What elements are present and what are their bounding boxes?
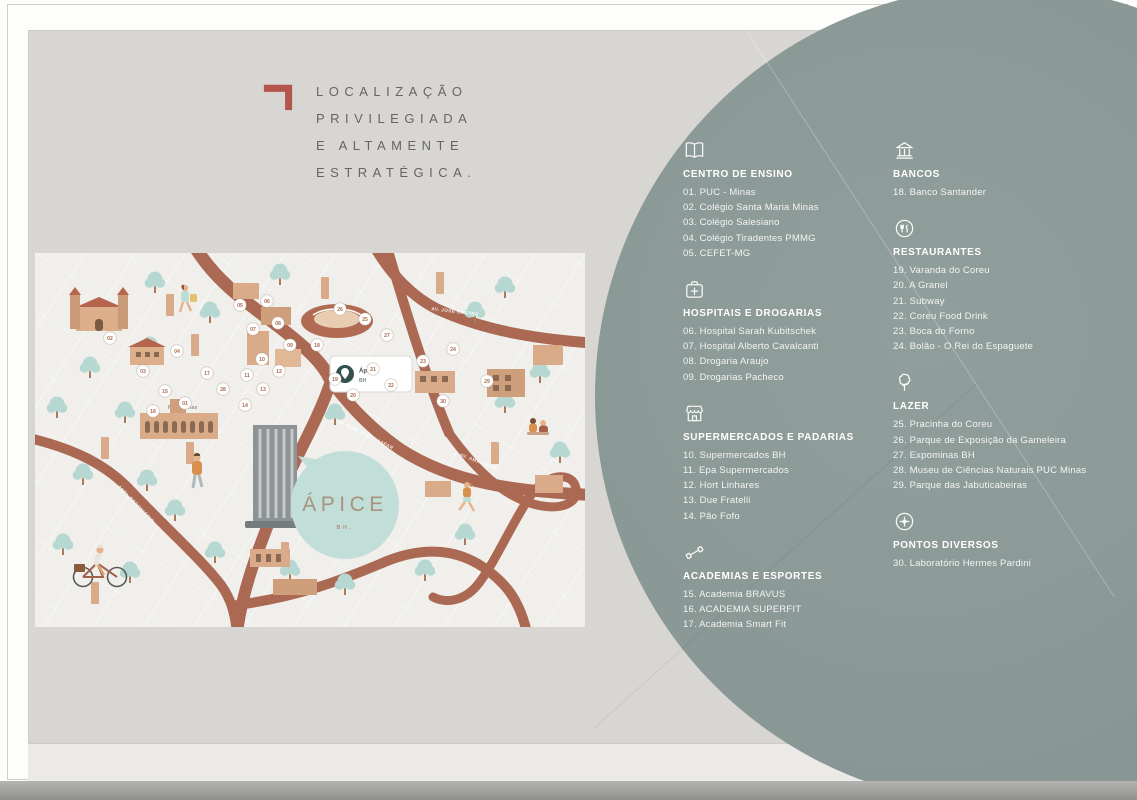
legend-section-supermercados: SUPERMERCADOS E PADARIAS 10. Supermercad… xyxy=(683,402,879,524)
map-marker-number: 06 xyxy=(264,299,270,305)
project-subtitle: BH. xyxy=(337,525,354,531)
map-marker-number: 30 xyxy=(440,399,446,405)
poi-item: 26. Parque de Exposição da Gameleira xyxy=(893,433,1093,448)
map-marker-number: 29 xyxy=(484,379,490,385)
poi-item: 21. Subway xyxy=(893,294,1093,309)
legend-section-hospitais: HOSPITAIS E DROGARIAS 06. Hospital Sarah… xyxy=(683,278,879,385)
map-marker-number: 13 xyxy=(260,387,266,393)
map-marker-number: 01 xyxy=(182,401,188,407)
legend-column-2: BANCOS 18. Banco Santander RESTAURANTES … xyxy=(893,139,1093,649)
legend-section-title: CENTRO DE ENSINO xyxy=(683,169,879,180)
map-marker-number: 26 xyxy=(337,307,343,313)
poi-item: 30. Laboratório Hermes Pardini xyxy=(893,556,1093,571)
poi-item: 14. Pão Fofo xyxy=(683,509,879,524)
corner-bracket-icon xyxy=(262,81,294,113)
title-line: ESTRATÉGICA. xyxy=(316,159,476,186)
tree-icon xyxy=(893,371,916,394)
legend-section-restaurantes: RESTAURANTES 19. Varanda do Coreu 20. A … xyxy=(893,217,1093,354)
poi-item: 06. Hospital Sarah Kubitschek xyxy=(683,324,879,339)
map-marker-number: 28 xyxy=(220,387,226,393)
legend-section-title: RESTAURANTES xyxy=(893,247,1093,258)
title-line: E ALTAMENTE xyxy=(316,132,476,159)
legend-section-title: PONTOS DIVERSOS xyxy=(893,540,1093,551)
poi-item: 07. Hospital Alberto Cavalcanti xyxy=(683,339,879,354)
project-balloon: ÁPICE BH. xyxy=(291,451,399,559)
pin-card-line2: BH xyxy=(359,378,367,384)
map-marker-number: 15 xyxy=(162,389,168,395)
location-map: PUC Minas xyxy=(35,253,585,627)
map-marker-number: 14 xyxy=(242,403,248,409)
restaurant-icon xyxy=(893,217,916,240)
legend-column-1: CENTRO DE ENSINO 01. PUC - Minas 02. Col… xyxy=(683,139,879,649)
dumbbell-icon xyxy=(683,541,706,564)
poi-item: 04. Colégio Tiradentes PMMG xyxy=(683,231,879,246)
poi-item: 10. Supermercados BH xyxy=(683,448,879,463)
poi-item: 11. Epa Supermercados xyxy=(683,463,879,478)
map-marker-number: 03 xyxy=(140,369,146,375)
map-marker-number: 16 xyxy=(150,409,156,415)
map-marker-number: 22 xyxy=(388,383,394,389)
map-marker-number: 19 xyxy=(332,377,338,383)
map-marker-number: 11 xyxy=(244,373,250,379)
map-marker-number: 12 xyxy=(276,369,282,375)
poi-item: 17. Academia Smart Fit xyxy=(683,617,879,632)
legend-section-title: BANCOS xyxy=(893,169,1093,180)
poi-item: 16. ACADEMIA SUPERFIT xyxy=(683,602,879,617)
poi-item: 12. Hort Linhares xyxy=(683,478,879,493)
legend-section-bancos: BANCOS 18. Banco Santander xyxy=(893,139,1093,200)
poi-item: 28. Museu de Ciências Naturais PUC Minas xyxy=(893,463,1093,478)
storefront-icon xyxy=(683,402,706,425)
map-marker-number: 04 xyxy=(174,349,180,355)
poi-item: 13. Due Fratelli xyxy=(683,493,879,508)
map-marker-number: 05 xyxy=(237,303,243,309)
poi-item: 08. Drogaria Araujo xyxy=(683,354,879,369)
poi-item: 29. Parque das Jabuticabeiras xyxy=(893,478,1093,493)
map-marker-number: 07 xyxy=(250,327,256,333)
poi-item: 27. Expominas BH xyxy=(893,448,1093,463)
map-marker-number: 02 xyxy=(107,336,113,342)
legend-section-pontos-diversos: PONTOS DIVERSOS 30. Laboratório Hermes P… xyxy=(893,510,1093,571)
poi-item: 05. CEFET-MG xyxy=(683,246,879,261)
poi-item: 24. Bolão - O Rei do Espaguete xyxy=(893,339,1093,354)
poi-item: 02. Colégio Santa Maria Minas xyxy=(683,200,879,215)
page-title: LOCALIZAÇÃO PRIVILEGIADA E ALTAMENTE EST… xyxy=(262,78,476,186)
poi-item: 19. Varanda do Coreu xyxy=(893,263,1093,278)
legend-section-title: HOSPITAIS E DROGARIAS xyxy=(683,308,879,319)
map-marker-number: 09 xyxy=(287,343,293,349)
map-marker-number: 21 xyxy=(370,367,376,373)
legend-section-title: SUPERMERCADOS E PADARIAS xyxy=(683,432,879,443)
poi-item: 23. Boca do Forno xyxy=(893,324,1093,339)
map-marker-number: 23 xyxy=(420,359,426,365)
legend-section-academias: ACADEMIAS E ESPORTES 15. Academia BRAVUS… xyxy=(683,541,879,633)
poi-item: 03. Colégio Salesiano xyxy=(683,215,879,230)
page-bottom-edge xyxy=(0,781,1137,800)
title-line: PRIVILEGIADA xyxy=(316,105,476,132)
poi-item: 15. Academia BRAVUS xyxy=(683,587,879,602)
brochure-page: LOCALIZAÇÃO PRIVILEGIADA E ALTAMENTE EST… xyxy=(0,0,1137,800)
map-marker-number: 08 xyxy=(275,321,281,327)
book-icon xyxy=(683,139,706,162)
legend-section-title: ACADEMIAS E ESPORTES xyxy=(683,571,879,582)
title-line: LOCALIZAÇÃO xyxy=(316,78,476,105)
legend-section-lazer: LAZER 25. Pracinha do Coreu 26. Parque d… xyxy=(893,371,1093,493)
first-aid-icon xyxy=(683,278,706,301)
poi-legend: CENTRO DE ENSINO 01. PUC - Minas 02. Col… xyxy=(683,139,1093,649)
legend-section-title: LAZER xyxy=(893,401,1093,412)
map-marker-number: 27 xyxy=(384,333,390,339)
legend-section-centro-de-ensino: CENTRO DE ENSINO 01. PUC - Minas 02. Col… xyxy=(683,139,879,261)
poi-item: 20. A Granel xyxy=(893,278,1093,293)
poi-item: 01. PUC - Minas xyxy=(683,185,879,200)
poi-item: 18. Banco Santander xyxy=(893,185,1093,200)
poi-item: 09. Drogarias Pacheco xyxy=(683,370,879,385)
map-marker-number: 24 xyxy=(450,347,456,353)
map-marker-number: 18 xyxy=(314,343,320,349)
poi-item: 25. Pracinha do Coreu xyxy=(893,417,1093,432)
map-marker-number: 10 xyxy=(259,357,265,363)
map-marker-number: 25 xyxy=(362,317,368,323)
map-marker-number: 17 xyxy=(204,371,210,377)
poi-item: 22. Coreu Food Drink xyxy=(893,309,1093,324)
project-name: ÁPICE xyxy=(302,493,388,516)
bank-icon xyxy=(893,139,916,162)
plus-circle-icon xyxy=(893,510,916,533)
map-marker-number: 20 xyxy=(350,393,356,399)
